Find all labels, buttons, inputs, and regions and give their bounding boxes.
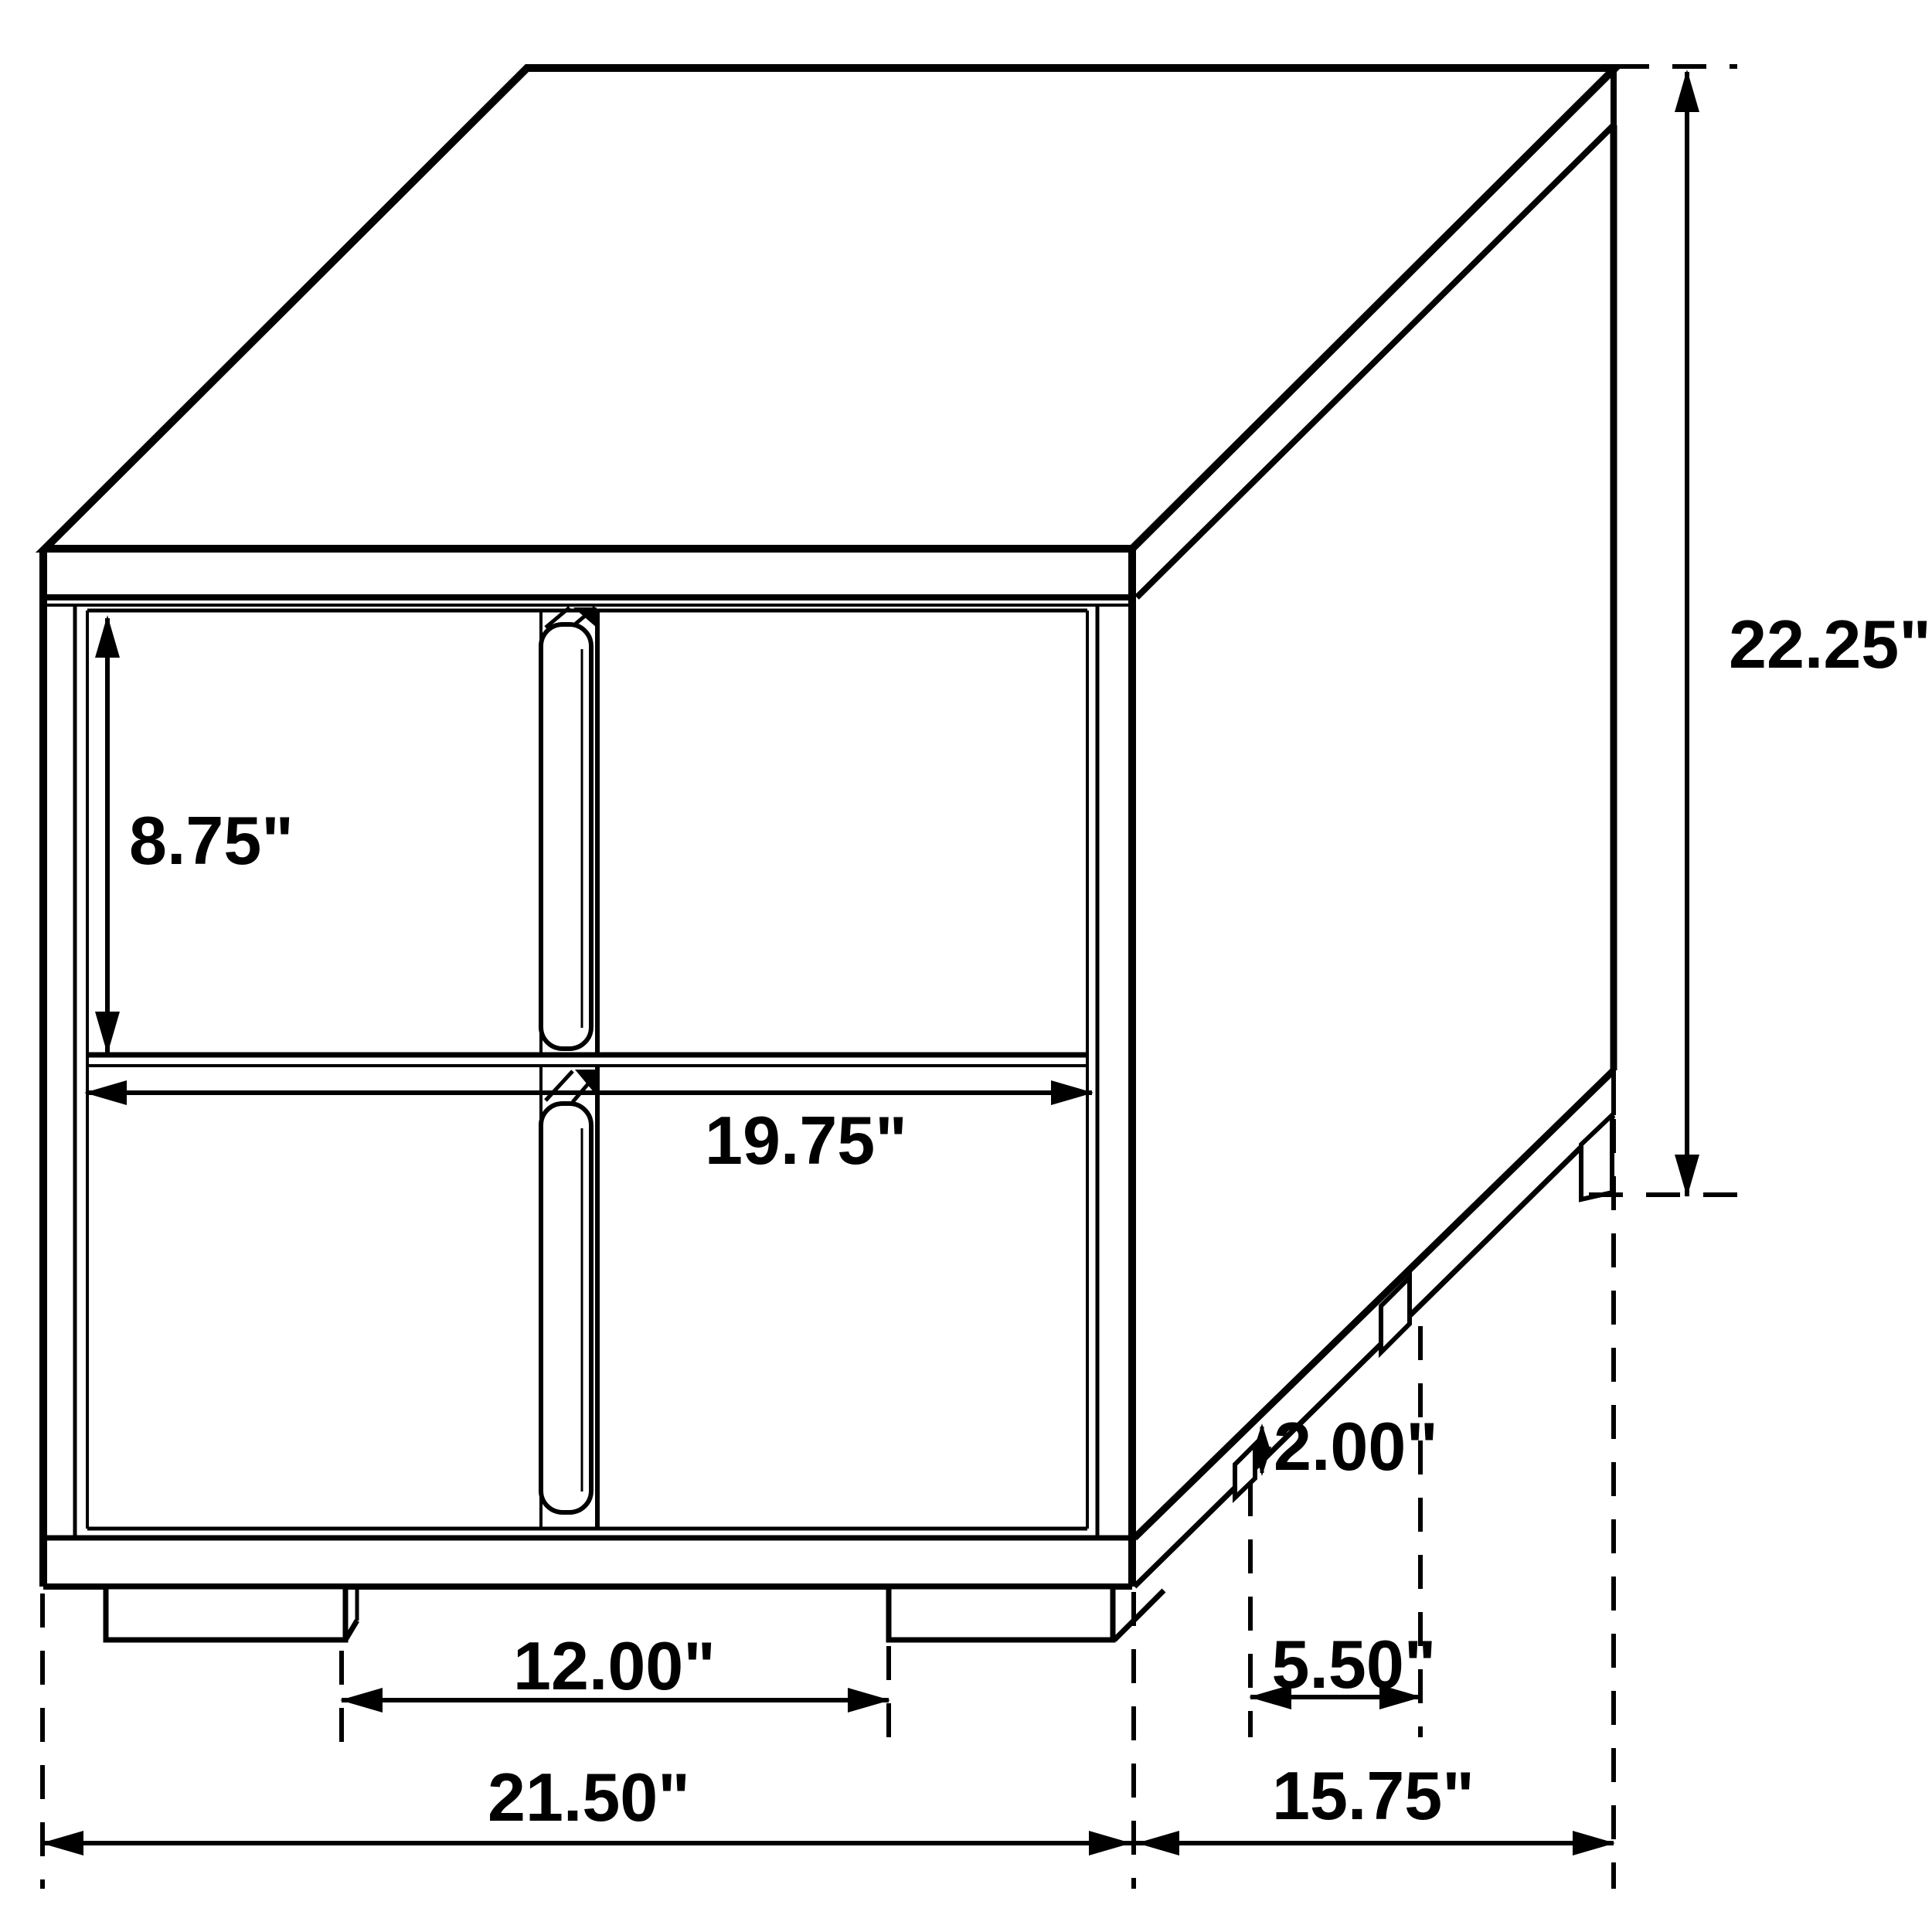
arrow-up-icon [1675, 70, 1699, 112]
arrow-left-icon [41, 1831, 83, 1855]
top-face [45, 68, 1615, 549]
dim-foot-height: 2.00" [1253, 1408, 1438, 1485]
dim-overall-depth-label: 15.75" [1272, 1757, 1475, 1834]
dim-side-feet-spacing-label: 5.50" [1272, 1626, 1437, 1702]
dim-overall-width-label: 21.50" [488, 1759, 690, 1835]
feet [106, 1115, 1612, 1640]
dim-side-feet-spacing: 5.50" [1249, 1326, 1437, 1737]
dim-overall-height-label: 22.25" [1729, 606, 1931, 682]
arrow-left-icon [340, 1688, 383, 1713]
front-right-foot-receding-edge [1114, 1590, 1164, 1640]
bottom-drawer-handle [541, 1104, 591, 1512]
dim-drawer-height-label: 8.75" [129, 802, 294, 879]
arrow-right-icon [1089, 1831, 1131, 1855]
dim-overall-depth: 15.75" [1135, 1119, 1615, 1889]
arrow-down-icon [95, 1012, 120, 1054]
side-plinth-bottom-edge [1134, 1115, 1614, 1587]
dim-foot-height-label: 2.00" [1274, 1408, 1438, 1485]
bottom-handle-hatch-1 [546, 1071, 573, 1100]
arrow-right-icon [1573, 1831, 1615, 1855]
drawing-canvas: 8.75" 19.75" 22.25" 2.00" [0, 0, 1932, 1932]
back-foot [1581, 1115, 1612, 1199]
dim-drawer-height: 8.75" [95, 615, 294, 1054]
front-left-foot [106, 1587, 345, 1640]
dim-overall-height: 22.25" [1589, 66, 1931, 1197]
dim-drawer-width-label: 19.75" [705, 1102, 907, 1179]
arrow-right-icon [848, 1688, 890, 1713]
arrow-up-icon [95, 615, 120, 658]
dim-front-feet-spacing-label: 12.00" [513, 1628, 716, 1704]
nightstand-dimension-diagram: 8.75" 19.75" 22.25" 2.00" [0, 0, 1932, 1932]
arrow-left-icon [84, 1080, 127, 1105]
front-right-foot [889, 1587, 1113, 1640]
arrow-down-icon [1675, 1155, 1699, 1197]
top-drawer-handle [541, 624, 591, 1049]
drawer-handles [541, 607, 598, 1512]
dim-front-feet-spacing: 12.00" [340, 1628, 890, 1742]
arrow-left-icon [1137, 1831, 1179, 1855]
